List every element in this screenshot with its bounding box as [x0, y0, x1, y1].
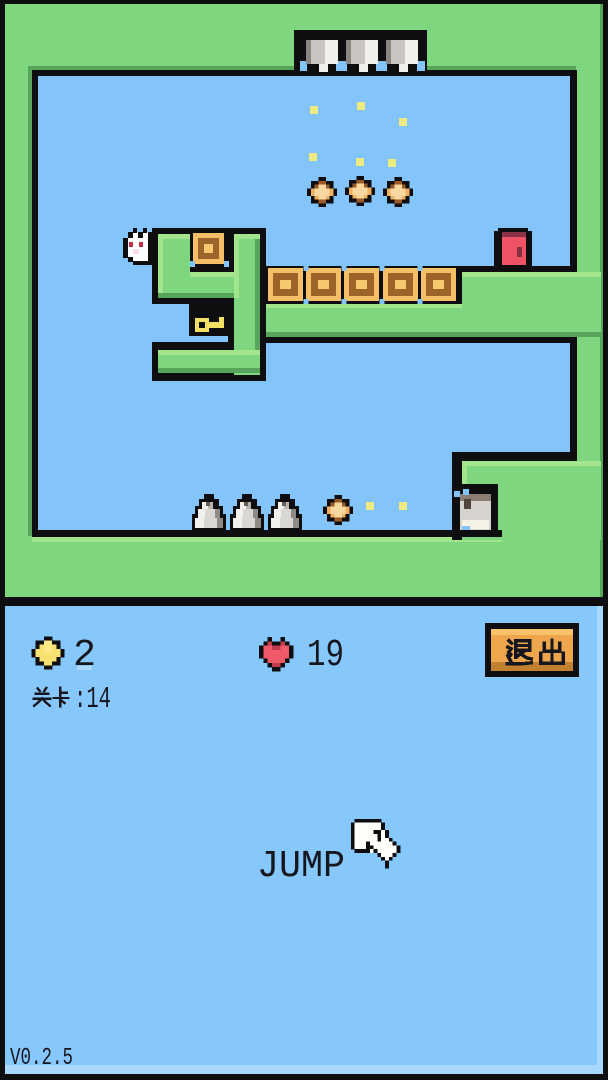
svg-text:2: 2	[73, 634, 96, 677]
svg-text:19: 19	[307, 634, 344, 677]
svg-text:V0.2.5: V0.2.5	[10, 1045, 73, 1072]
svg-text:JUMP: JUMP	[257, 845, 345, 888]
svg-text::14: :14	[74, 682, 111, 717]
